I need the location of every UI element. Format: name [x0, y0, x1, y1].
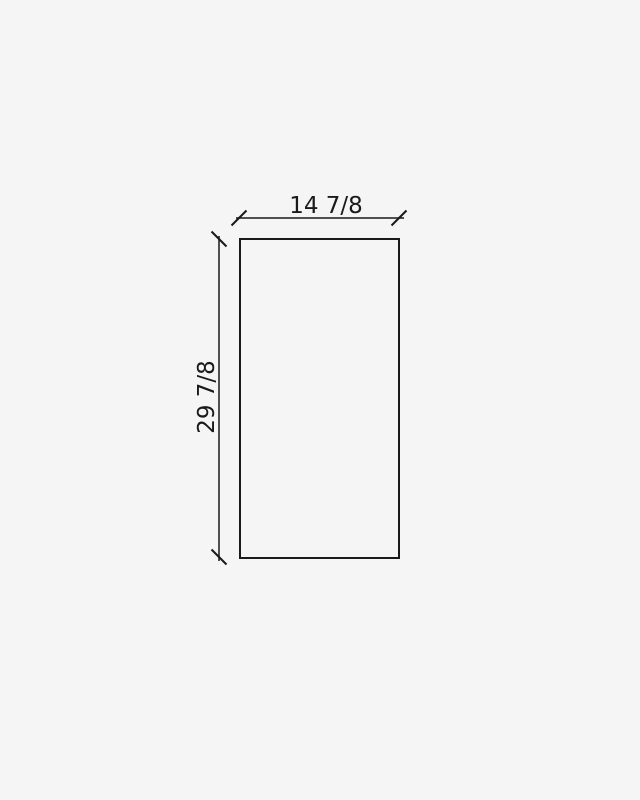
height-dimension-label: 29 7/8 — [194, 360, 220, 434]
canvas-background — [0, 0, 640, 800]
width-dimension-label: 14 7/8 — [289, 193, 363, 219]
page: { "diagram": { "type": "dimension-drawin… — [0, 0, 640, 800]
dimension-diagram: 14 7/8 29 7/8 — [0, 0, 640, 800]
diagram-svg: 14 7/8 29 7/8 — [0, 0, 640, 800]
